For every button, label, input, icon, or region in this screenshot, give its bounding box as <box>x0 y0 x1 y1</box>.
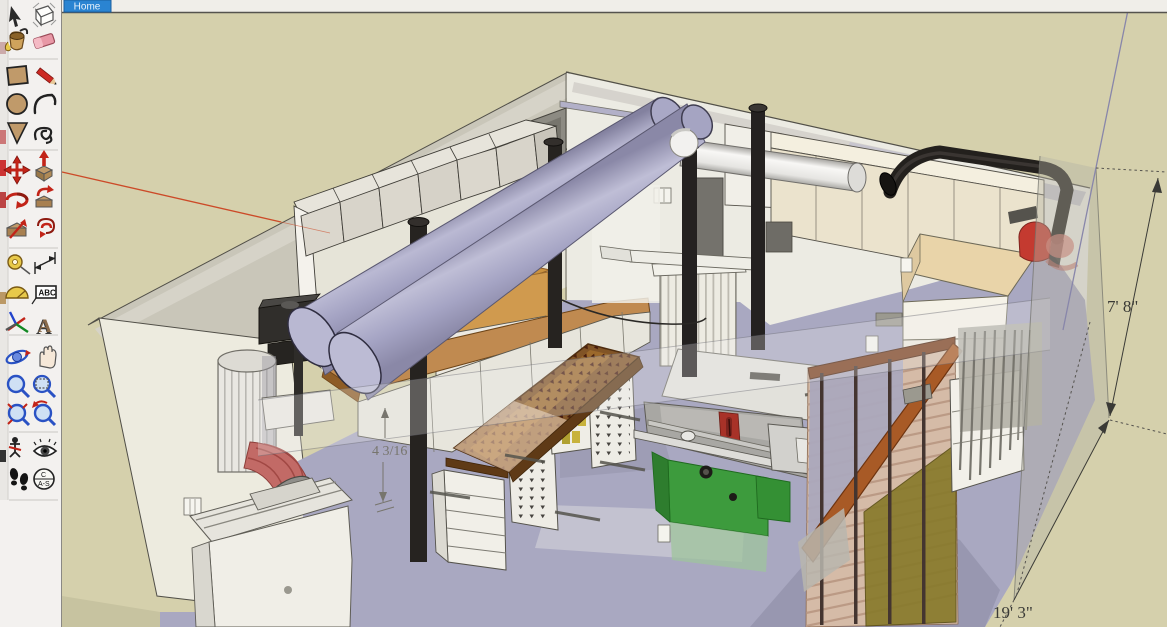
svg-text:7' 8": 7' 8" <box>1107 297 1138 316</box>
svg-text:ABC: ABC <box>39 289 57 298</box>
svg-text:C: C <box>41 472 46 479</box>
svg-text:A: A <box>38 316 52 337</box>
svg-text:19' 3": 19' 3" <box>993 603 1033 622</box>
svg-text:Home: Home <box>74 2 101 13</box>
svg-text:4 3/16: 4 3/16 <box>372 444 407 459</box>
svg-text:A-S: A-S <box>38 481 50 488</box>
